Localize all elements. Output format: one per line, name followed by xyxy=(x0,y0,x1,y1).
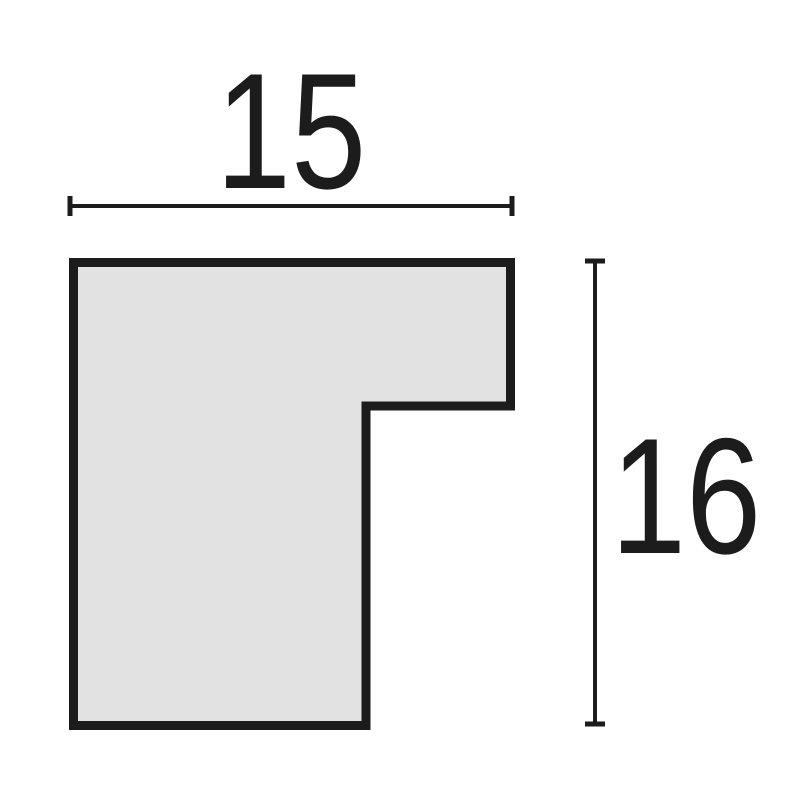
height-dimension-label: 16 xyxy=(611,403,761,588)
technical-drawing: 15 16 xyxy=(0,0,800,800)
width-dimension-label: 15 xyxy=(216,38,366,223)
width-dimension: 15 xyxy=(70,38,512,223)
height-dimension: 16 xyxy=(585,261,761,724)
profile-shape xyxy=(74,263,511,726)
drawing-canvas: 15 16 xyxy=(0,0,800,800)
